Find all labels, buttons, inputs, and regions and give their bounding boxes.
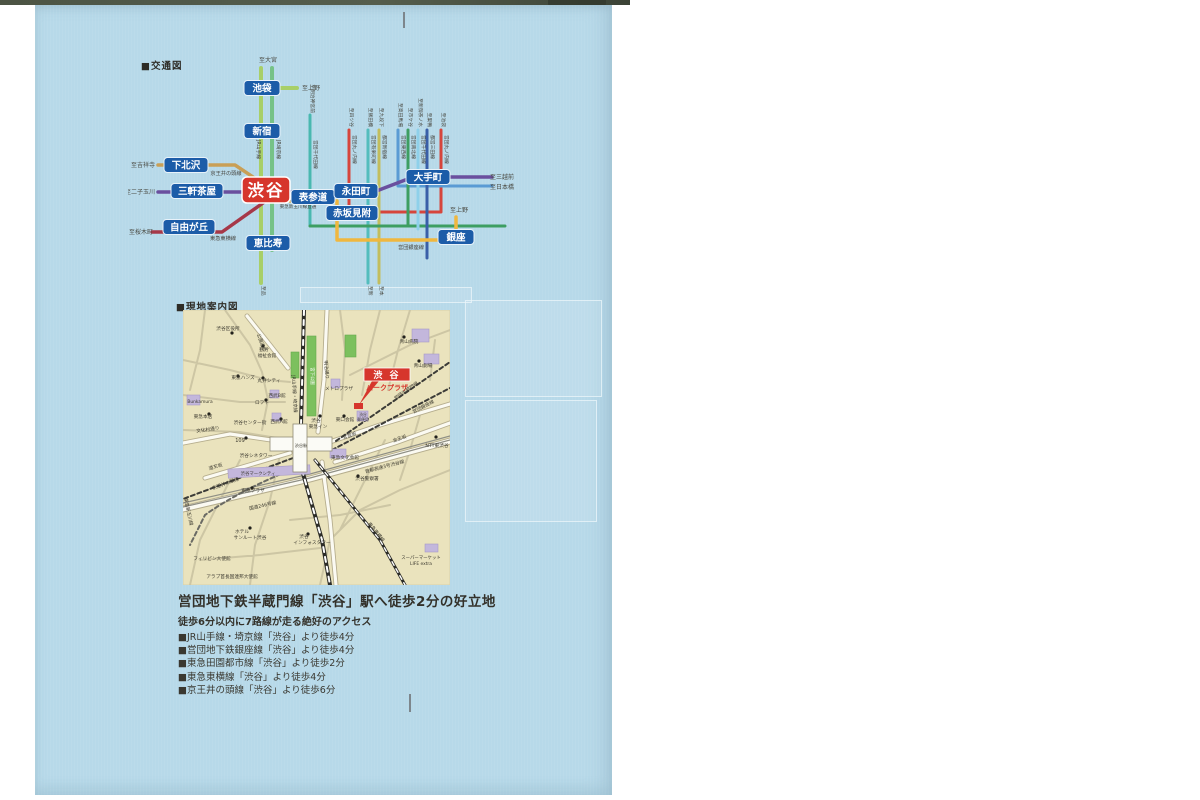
property-name-line2: パークプラザ [366, 383, 408, 392]
line-endpoint-label: 至高田馬場 [397, 103, 404, 127]
brochure-page: ■交通図 [35, 5, 612, 795]
transit-lines [152, 68, 505, 283]
map-label: 福祉会館 [258, 352, 277, 359]
line-name-label: 営団丸ノ内線 [351, 135, 358, 164]
station-label: 三軒茶屋 [178, 186, 217, 198]
map-poi-dot [434, 435, 437, 438]
map-label: 渋谷駅 [295, 442, 308, 449]
station-label: 赤坂見附 [333, 208, 372, 220]
line-endpoint-label: 至池袋 [440, 113, 447, 128]
station-shibuya: 渋谷 [242, 177, 290, 203]
route-label: 京王井の頭線 [210, 169, 241, 177]
map-label: ホテル [235, 529, 249, 535]
access-list: ■JR山手線・埼京線「渋谷」より徒歩4分 ■営団地下鉄銀座線「渋谷」より徒歩4分… [178, 631, 508, 697]
line-endpoint-label: 至三越前 [490, 173, 514, 181]
station-label: 池袋 [252, 83, 272, 95]
map-poi-dot [244, 436, 247, 439]
map-label: サンルート渋谷 [234, 534, 267, 541]
access-item: ■JR山手線・埼京線「渋谷」より徒歩4分 [178, 631, 508, 644]
station-label: 下北沢 [172, 160, 201, 172]
route-label: 営団銀座線 [398, 243, 424, 251]
line-endpoint-label: 至吉祥寺 [131, 161, 155, 169]
map-label: 西武B館 [268, 392, 286, 399]
scan-artifact-tick [403, 12, 405, 28]
station-sangenjaya: 三軒茶屋 [171, 184, 223, 199]
map-label: スーパーマーケット [401, 554, 440, 561]
map-label: ロフト [255, 400, 269, 406]
line-name-label: 営団有楽町線 [370, 135, 377, 164]
map-label: NTT東渋谷 [425, 442, 449, 449]
map-label: 勤労 [259, 346, 269, 353]
route-label: 東急東横線 [210, 234, 236, 242]
property-site [354, 403, 363, 409]
map-label: 東急本店 [194, 413, 213, 420]
map-poi-dot [318, 414, 321, 417]
map-label: フィリピン大使館 [193, 555, 231, 562]
showthrough-artifact [465, 300, 602, 397]
line-endpoint-label: 至二子玉川 [128, 189, 155, 196]
line-name-label: 都営三田線 [429, 135, 436, 159]
map-label: 渋谷 [299, 533, 309, 540]
map-label: 丸井シティ [257, 377, 280, 384]
map-label: インフォスタワー [293, 539, 331, 546]
access-subheadline: 徒歩6分以内に7路線が走る絶好のアクセス [178, 613, 508, 628]
station-ebisu: 恵比寿 [246, 236, 290, 251]
access-info: 営団地下鉄半蔵門線「渋谷」駅へ徒歩2分の好立地 徒歩6分以内に7路線が走る絶好の… [178, 590, 508, 697]
station-nagatacho: 永田町 [334, 184, 378, 199]
line-endpoint-label: 至飯田橋 [367, 108, 374, 127]
map-label: 渋谷区役所 [216, 325, 240, 332]
map-label: メトロプラザ [325, 386, 353, 392]
showthrough-artifact [465, 400, 597, 522]
map-poi-dot [402, 335, 405, 338]
access-headline: 営団地下鉄半蔵門線「渋谷」駅へ徒歩2分の好立地 [178, 590, 508, 610]
map-label: 東口会館 [336, 416, 355, 423]
station-ginza: 銀座 [438, 230, 474, 245]
map-label: アラブ首長国連邦大使館 [206, 573, 258, 580]
map-label: 渋谷シネタワー [240, 452, 273, 459]
line-name-label: 都営新宿線 [381, 135, 388, 159]
map-label: 東急文化会館 [331, 454, 359, 461]
line-endpoint-label: 至品川 [260, 286, 266, 296]
line-endpoint-label: 至本八幡 [378, 286, 385, 296]
line-endpoint-label: 至新木場 [367, 286, 374, 296]
access-item: ■東急東横線「渋谷」より徒歩4分 [178, 671, 508, 684]
access-item: ■京王井の頭線「渋谷」より徒歩6分 [178, 684, 508, 697]
map-label: 渋谷警察署 [355, 475, 379, 482]
line-name-label: JR山手線 [255, 139, 262, 159]
line-endpoint-label: 至四ツ谷 [348, 108, 355, 127]
map-label: Bunkamura [187, 399, 213, 405]
map-label: 郵便局 [357, 417, 369, 422]
line-endpoint-label: 至明治神宮前 [309, 84, 316, 113]
station-label: 新宿 [252, 126, 272, 138]
station-label: 自由が丘 [170, 222, 209, 234]
line-endpoint-label: 至巣鴨 [426, 113, 433, 128]
map-label: 渋谷マークシティ [241, 470, 276, 477]
station-label: 銀座 [446, 232, 466, 244]
line-endpoint-label: 至大宮 [259, 56, 277, 64]
line-endpoint-label: 至新御茶ノ水 [417, 98, 424, 127]
line-name-label: 営団南北線 [410, 135, 417, 159]
scanned-page-canvas: ■交通図 [0, 0, 1200, 800]
map-label: 渋谷 [311, 417, 321, 424]
station-label: 恵比寿 [254, 238, 283, 250]
line-endpoint-label: 至日本橋 [490, 183, 514, 191]
map-label: LIFE extra [410, 561, 432, 567]
access-item: ■東急田園都市線「渋谷」より徒歩2分 [178, 657, 508, 670]
property-name-line1: 渋 谷 [373, 369, 400, 381]
map-label: 東急ハンズ [231, 374, 255, 381]
map-label: 109 [235, 438, 245, 444]
map-label: 青山劇場 [414, 362, 433, 369]
map-label: 渋谷センター街 [234, 419, 267, 426]
area-map: 渋 谷 パークプラザ 渋谷区役所公園通り勤労福祉会館東急ハンズ丸井シティロフトB… [183, 310, 450, 585]
line-name-label: 営団東西線 [400, 135, 407, 159]
map-label: 東急イン [309, 423, 328, 430]
station-shinjuku: 新宿 [244, 124, 280, 139]
station-label: 大手町 [414, 172, 443, 184]
line-endpoint-label: 至九段下 [378, 108, 385, 127]
map-label: 青山病院 [400, 338, 419, 345]
station-akasakamitsuke: 赤坂見附 [326, 206, 378, 221]
station-label: 渋谷 [248, 180, 285, 200]
line-name-label: 営団丸ノ内線 [443, 135, 450, 164]
line-name-label: 営団千代田線 [312, 140, 319, 169]
station-label: 永田町 [341, 186, 371, 198]
line-name-label: JR埼京線 [275, 139, 282, 159]
station-ikebukuro: 池袋 [244, 81, 280, 96]
map-label: 東急プラザ [241, 487, 265, 494]
station-label: 表参道 [298, 192, 328, 204]
station-shimokitazawa: 下北沢 [164, 158, 208, 173]
station-otemachi: 大手町 [406, 170, 450, 185]
line-endpoint-label: 至桜木町 [129, 228, 153, 236]
map-label: 宮下公園 [309, 367, 316, 385]
station-omotesando: 表参道 [291, 190, 335, 205]
access-item: ■営団地下鉄銀座線「渋谷」より徒歩4分 [178, 644, 508, 657]
map-poi-dot [417, 359, 420, 362]
map-label: 西武A館 [270, 418, 288, 425]
transit-diagram: 至大宮至上野至吉祥寺至二子玉川至桜木町至三越前至日本橋至上野至明治神宮前至四ツ谷… [128, 44, 612, 296]
line-endpoint-label: 至市ケ谷 [407, 108, 414, 127]
station-jiyugaoka: 自由が丘 [163, 220, 215, 235]
line-name-label: 営団千代田線 [420, 135, 427, 164]
line-endpoint-label: 至上野 [450, 206, 468, 214]
